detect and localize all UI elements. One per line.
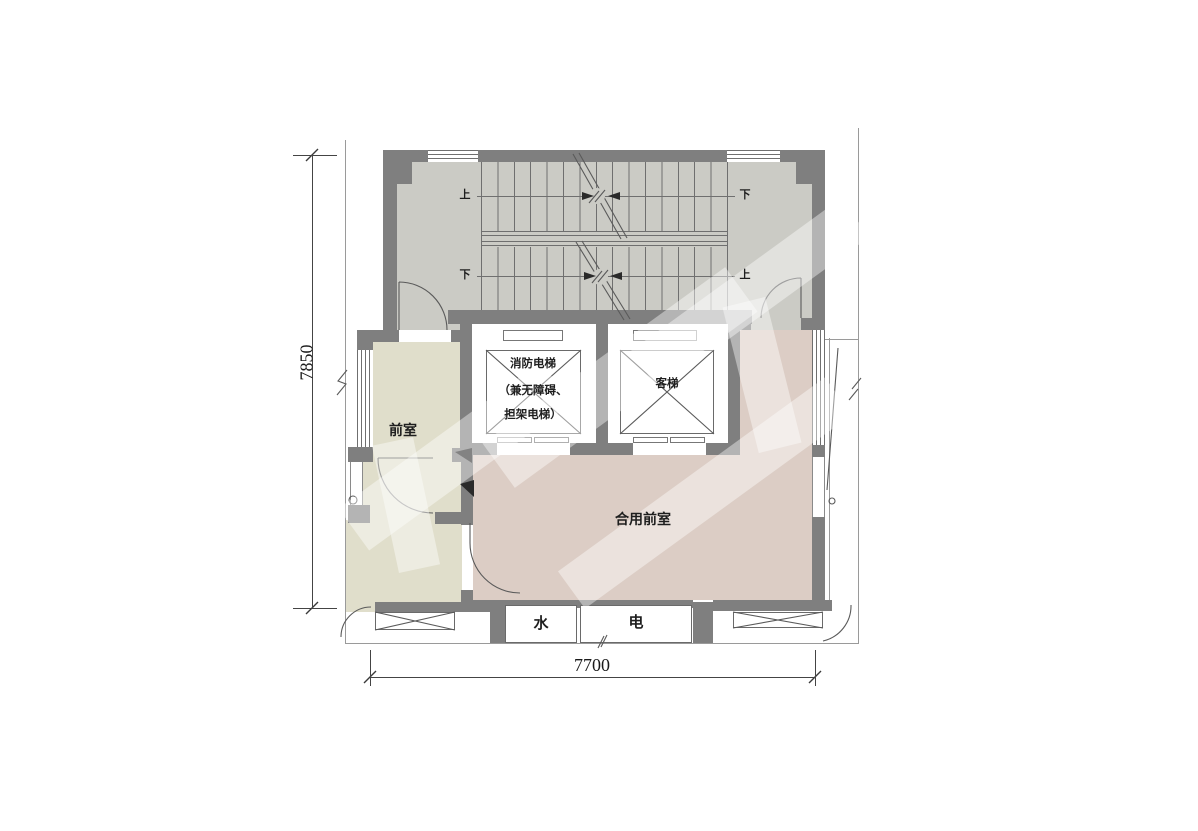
wall-bottom-right bbox=[713, 600, 832, 611]
wall-segment bbox=[801, 318, 825, 330]
dim-value-horizontal: 7700 bbox=[557, 655, 627, 676]
stair-down-label-top-right: 下 bbox=[736, 189, 754, 201]
wall-segment bbox=[693, 602, 713, 643]
fire-elevator-label-line3: 担架电梯） bbox=[483, 408, 583, 421]
vent-louver-left bbox=[375, 612, 455, 630]
wall-segment bbox=[812, 445, 825, 457]
wall-stair-right bbox=[812, 162, 825, 318]
wall-segment bbox=[348, 505, 370, 523]
dim-ext-line bbox=[293, 608, 337, 609]
front-room-floor-ext bbox=[345, 520, 357, 612]
stair-flight-lower bbox=[481, 247, 727, 318]
window-top-left bbox=[428, 150, 478, 162]
opening-left bbox=[350, 462, 363, 505]
front-room-label: 前室 bbox=[375, 424, 431, 439]
dim-value-vertical: 7850 bbox=[297, 332, 318, 394]
stair-guideline-upper bbox=[477, 196, 735, 197]
window-top-right bbox=[727, 150, 780, 162]
wall-segment bbox=[348, 447, 373, 462]
outline-right bbox=[858, 128, 859, 643]
wall-segment bbox=[435, 512, 468, 524]
shared-front-room-right-arm bbox=[740, 330, 812, 455]
wall-segment bbox=[490, 602, 505, 643]
stair-up-label-top-left: 上 bbox=[456, 189, 474, 201]
elevator-car-outline bbox=[620, 350, 714, 434]
elevator-door-opening bbox=[633, 443, 706, 455]
stair-landing-line bbox=[481, 245, 727, 246]
elevator-door-panel bbox=[497, 437, 532, 443]
stair-guideline-lower bbox=[477, 276, 735, 277]
wall-segment bbox=[357, 330, 399, 342]
louver-window-right bbox=[812, 330, 825, 445]
stair-edge-left bbox=[481, 162, 482, 318]
elevator-counterweight bbox=[633, 330, 697, 341]
stair-landing-line bbox=[481, 241, 727, 242]
stair-down-label-bottom-left: 下 bbox=[456, 269, 474, 281]
wall-stair-left bbox=[383, 162, 397, 330]
stair-flight-upper bbox=[481, 162, 727, 232]
dim-ext-line bbox=[815, 650, 816, 686]
dim-ext-line bbox=[293, 155, 337, 156]
elevator-door-opening bbox=[497, 443, 570, 455]
wall-right-lower bbox=[812, 517, 825, 600]
fire-elevator-label-line2: （兼无障碍、 bbox=[483, 384, 583, 397]
opening-right bbox=[812, 457, 825, 517]
elevator-door-panel bbox=[633, 437, 668, 443]
outline-bottom bbox=[345, 643, 859, 644]
shared-front-room-label: 合用前室 bbox=[603, 513, 683, 528]
stair-landing-line bbox=[481, 231, 727, 232]
floor-plan-canvas: 前室 合用前室 消防电梯 （兼无障碍、 担架电梯） 客梯 水 电 上 下 下 上… bbox=[0, 0, 1198, 831]
stair-edge-right bbox=[727, 162, 728, 318]
stair-landing-line bbox=[481, 235, 727, 236]
elevator-door-panel bbox=[534, 437, 569, 443]
stair-up-label-bottom-right: 上 bbox=[736, 269, 754, 281]
fire-elevator-label-line1: 消防电梯 bbox=[483, 357, 583, 370]
dim-line-horizontal bbox=[370, 677, 815, 678]
passenger-elevator-label: 客梯 bbox=[637, 377, 697, 390]
outline-left bbox=[345, 140, 346, 643]
elevator-door-panel bbox=[670, 437, 705, 443]
wall-segment bbox=[357, 342, 373, 350]
dim-ext-line bbox=[370, 650, 371, 686]
water-shaft-label: 水 bbox=[505, 615, 577, 632]
vent-louver-right bbox=[733, 612, 823, 628]
outline-right-band bbox=[829, 338, 830, 600]
louver-window-left bbox=[357, 350, 373, 447]
electric-shaft-label: 电 bbox=[580, 614, 692, 631]
elevator-counterweight bbox=[503, 330, 563, 341]
outline-right-ledge bbox=[825, 339, 858, 340]
